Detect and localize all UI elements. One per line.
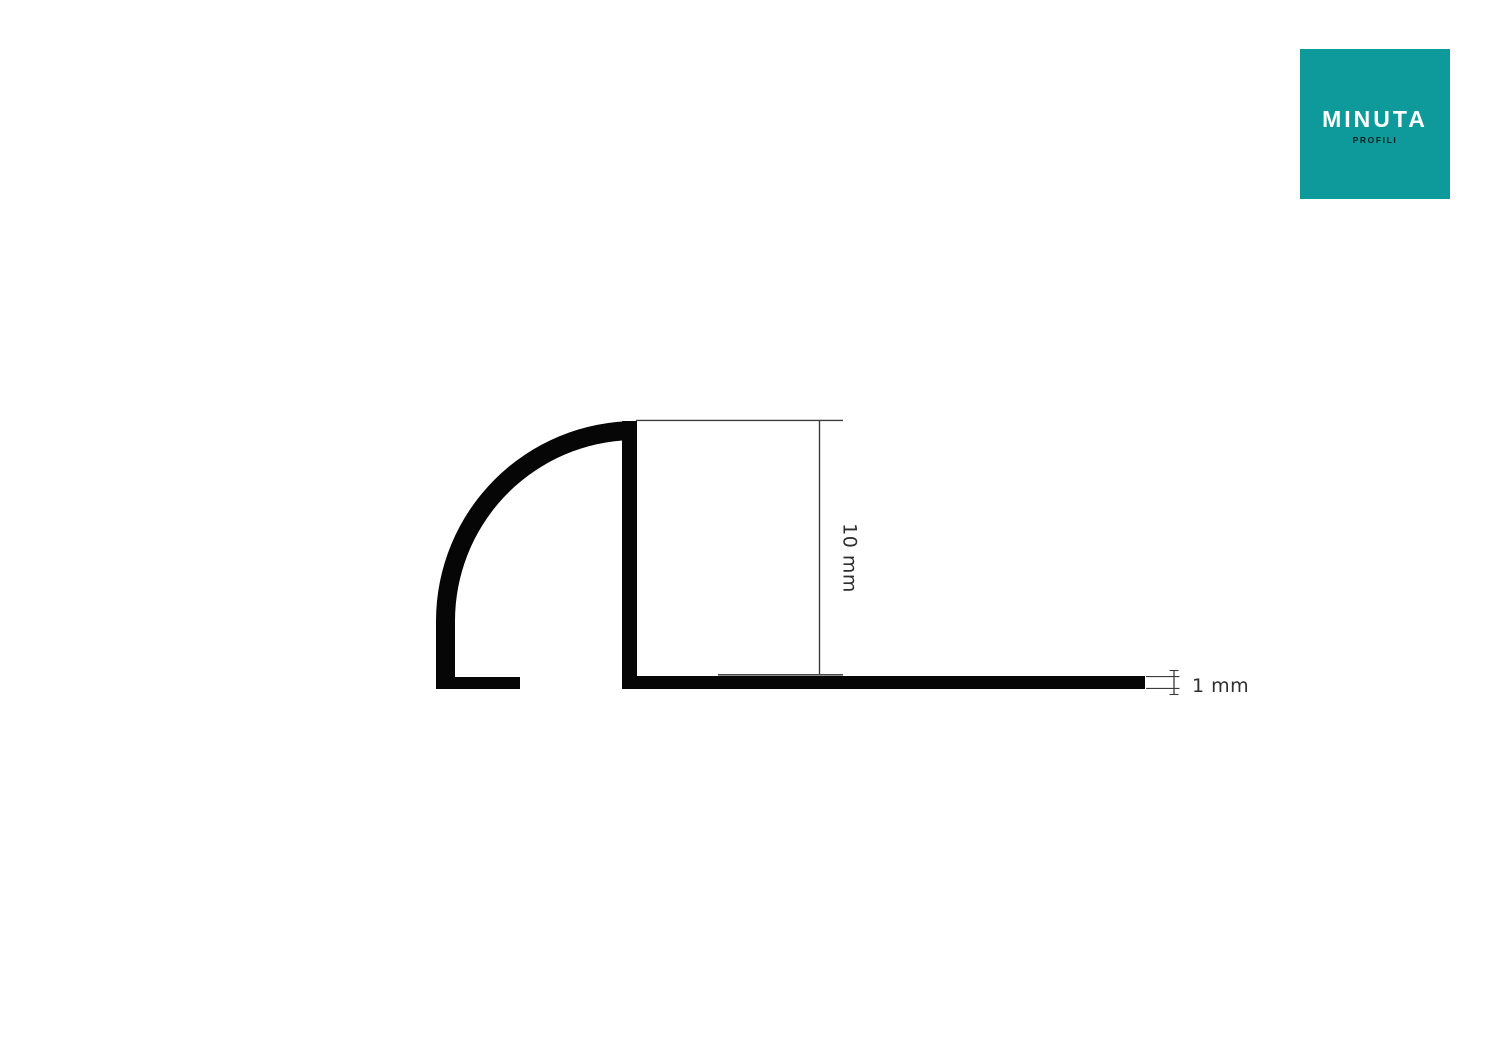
brand-subtitle: PROFILI: [1300, 136, 1450, 145]
profile-diagram: [0, 0, 1500, 1061]
height-dimension-label: 10 mm: [840, 523, 859, 593]
profile-base-flange: [622, 676, 1145, 689]
dimension-lines: [636, 420, 1180, 694]
page-canvas: 10 mm 1 mm MINUTA PROFILI: [0, 0, 1500, 1061]
thickness-dimension-label: 1 mm: [1192, 677, 1249, 696]
profile-vertical-leg: [622, 421, 637, 689]
profile-curved-flange: [436, 421, 636, 689]
brand-name: MINUTA: [1300, 108, 1450, 131]
brand-logo: MINUTA PROFILI: [1300, 49, 1450, 199]
